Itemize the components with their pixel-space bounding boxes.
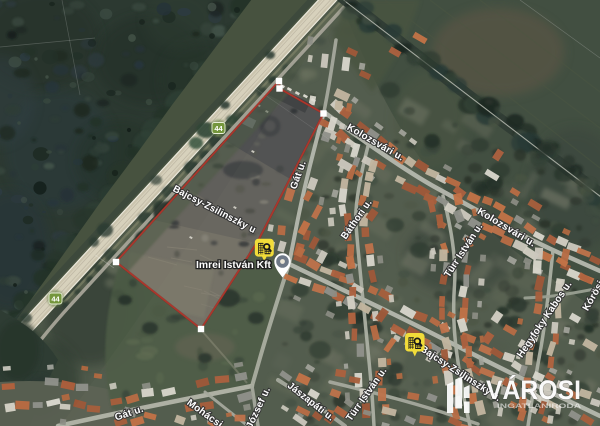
svg-text:VÁROSI: VÁROSI xyxy=(486,374,581,405)
svg-text:44: 44 xyxy=(51,294,60,303)
svg-text:44: 44 xyxy=(214,124,223,133)
svg-text:INGATLANIRODA: INGATLANIRODA xyxy=(497,403,581,410)
svg-text:Imrei István Kft: Imrei István Kft xyxy=(196,260,272,271)
